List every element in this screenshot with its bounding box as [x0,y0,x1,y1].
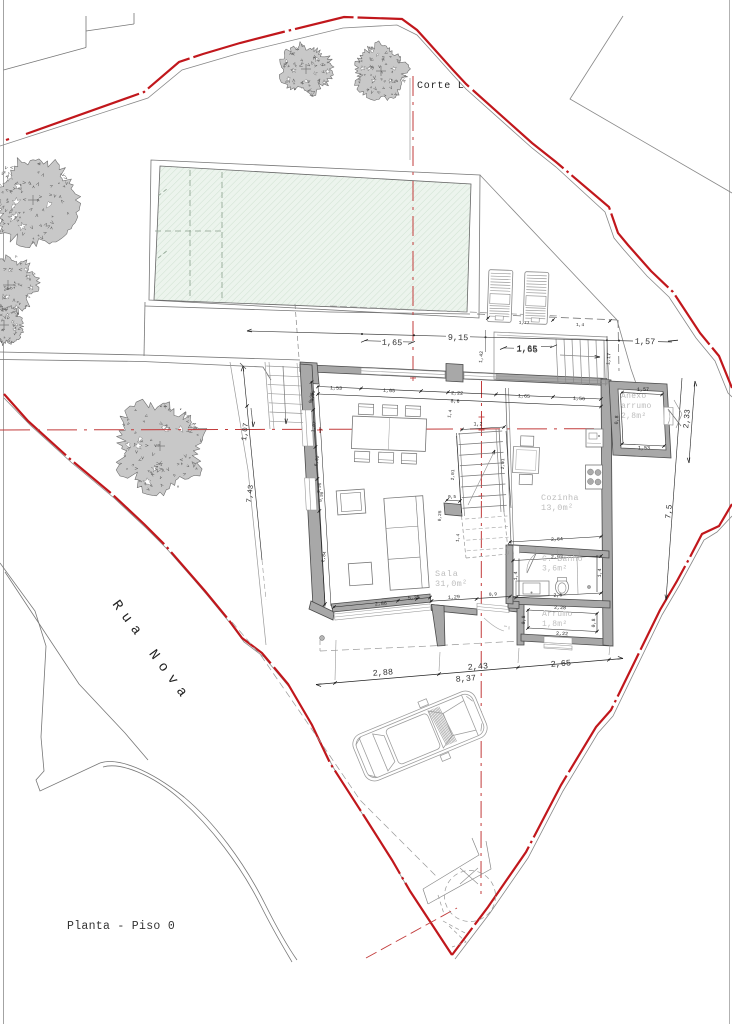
svg-text:1,4: 1,4 [513,571,519,580]
svg-text:2,01: 2,01 [500,458,507,469]
svg-text:1,65: 1,65 [517,344,538,355]
svg-text:2,8m²: 2,8m² [621,412,647,421]
svg-text:1,42: 1,42 [478,351,485,363]
svg-text:2,22: 2,22 [556,631,568,637]
svg-text:3,6m²: 3,6m² [542,565,568,574]
svg-text:1,65: 1,65 [383,388,395,395]
svg-text:0,8: 0,8 [614,415,620,424]
svg-text:0,8: 0,8 [521,615,527,624]
svg-text:0,8: 0,8 [591,618,597,627]
svg-text:1,65: 1,65 [382,338,403,349]
svg-text:1,53: 1,53 [330,385,342,392]
svg-text:arrumo: arrumo [621,402,652,411]
svg-text:Corte L: Corte L [417,81,465,92]
svg-text:C. Banho: C. Banho [542,555,583,564]
svg-text:1,65: 1,65 [518,393,530,400]
svg-text:Cozinha: Cozinha [541,493,579,503]
svg-text:1,77: 1,77 [519,320,530,326]
svg-text:13,0m²: 13,0m² [541,503,573,513]
svg-text:1,8m²: 1,8m² [542,620,568,629]
svg-text:8,37: 8,37 [455,673,476,685]
svg-text:2,88: 2,88 [375,600,387,607]
svg-text:1,2: 1,2 [473,422,482,428]
svg-text:9,15: 9,15 [448,333,469,344]
svg-text:1,57: 1,57 [635,337,656,348]
svg-text:2,33: 2,33 [682,409,693,429]
svg-text:1,53: 1,53 [638,446,650,452]
svg-text:2,65: 2,65 [550,658,571,670]
svg-text:5,35: 5,35 [408,594,420,601]
svg-text:1,4: 1,4 [455,533,462,542]
svg-text:2,88: 2,88 [372,667,393,679]
svg-text:1,4: 1,4 [576,322,585,328]
svg-text:2,64: 2,64 [551,536,563,543]
svg-text:0,25: 0,25 [437,510,443,521]
svg-text:1,17: 1,17 [605,353,612,365]
svg-text:Sala: Sala [435,569,459,579]
svg-text:2,22: 2,22 [451,390,463,397]
svg-text:Planta - Piso 0: Planta - Piso 0 [67,920,175,933]
svg-text:2,43: 2,43 [467,661,488,673]
svg-text:1,4: 1,4 [597,568,603,577]
svg-text:31,0m²: 31,0m² [435,579,467,589]
svg-text:1,56: 1,56 [573,396,585,403]
svg-text:8,6: 8,6 [450,398,459,404]
svg-text:1,57: 1,57 [637,387,649,393]
svg-text:7,5: 7,5 [664,504,675,520]
svg-text:Arrumo: Arrumo [542,610,573,619]
svg-text:0,9: 0,9 [489,591,498,598]
svg-text:2,01: 2,01 [450,469,457,480]
svg-text:2,5: 2,5 [553,592,562,598]
svg-text:0,5: 0,5 [448,494,456,500]
